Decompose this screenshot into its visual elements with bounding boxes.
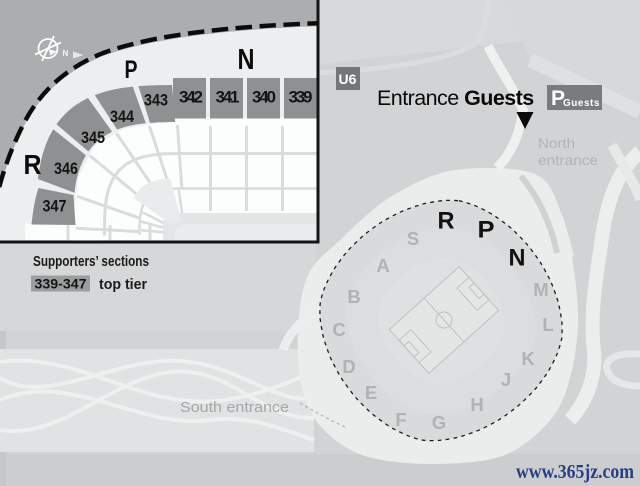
svg-text:345: 345 <box>81 128 105 147</box>
svg-text:Supporters’ sections: Supporters’ sections <box>33 254 149 270</box>
svg-text:U6: U6 <box>339 71 357 87</box>
svg-text:344: 344 <box>110 107 134 126</box>
svg-text:M: M <box>533 279 548 300</box>
svg-text:E: E <box>365 382 377 403</box>
svg-text:South entrance: South entrance <box>180 400 289 416</box>
svg-text:339: 339 <box>289 88 313 107</box>
svg-text:346: 346 <box>54 159 78 178</box>
svg-text:Entrance Guests: Entrance Guests <box>377 86 534 110</box>
svg-text:N: N <box>509 245 526 272</box>
svg-text:North: North <box>538 135 575 151</box>
svg-text:D: D <box>342 356 355 377</box>
svg-text:N: N <box>238 44 255 76</box>
svg-text:340: 340 <box>252 88 276 107</box>
svg-text:342: 342 <box>179 88 203 107</box>
svg-text:K: K <box>521 348 535 369</box>
svg-text:A: A <box>376 255 389 276</box>
svg-text:L: L <box>542 314 553 335</box>
svg-text:www.365jz.com: www.365jz.com <box>516 461 634 483</box>
svg-text:top tier: top tier <box>99 277 147 293</box>
svg-text:N: N <box>63 49 69 58</box>
svg-text:P: P <box>478 217 495 244</box>
svg-text:G: G <box>432 412 446 433</box>
svg-text:entrance: entrance <box>538 152 598 168</box>
svg-text:C: C <box>332 319 345 340</box>
svg-text:343: 343 <box>144 91 168 110</box>
svg-text:B: B <box>347 286 360 307</box>
svg-text:341: 341 <box>216 88 240 107</box>
svg-text:R: R <box>24 149 42 180</box>
svg-text:P: P <box>125 56 138 84</box>
svg-text:H: H <box>470 394 483 415</box>
svg-text:347: 347 <box>43 197 67 216</box>
svg-text:J: J <box>501 369 511 390</box>
svg-text:Guests: Guests <box>563 98 600 109</box>
svg-text:S: S <box>407 228 419 249</box>
svg-text:339-347: 339-347 <box>35 276 87 292</box>
svg-text:F: F <box>395 409 406 430</box>
svg-text:R: R <box>438 208 455 235</box>
